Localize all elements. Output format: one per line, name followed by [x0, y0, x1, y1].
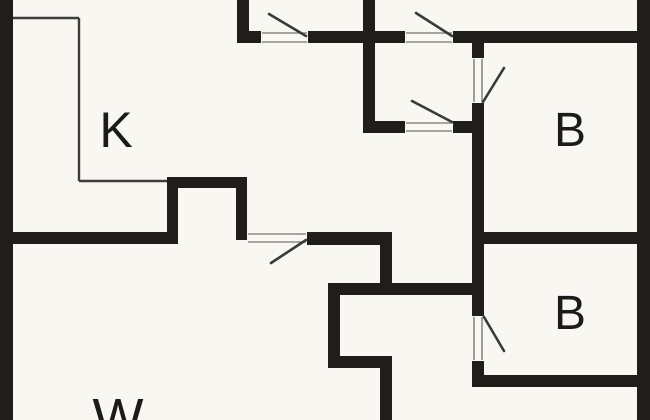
hall-wall-top	[307, 232, 392, 245]
hallroom-wall-bottom-left	[363, 121, 405, 133]
top-wall-middle	[308, 31, 405, 43]
hallroom-wall-left	[363, 0, 375, 133]
corridor-wall-horizontal	[328, 283, 473, 295]
exterior-wall-right	[637, 0, 650, 420]
alcove-wall-top	[167, 177, 247, 188]
alcove-wall-left	[167, 177, 178, 244]
room-label-living-room: W	[93, 388, 144, 420]
bedroom-wall-top-segment	[472, 31, 484, 58]
floor-plan: KBBW	[0, 0, 650, 420]
corridor-wall-lower	[380, 356, 392, 420]
room-label-bedroom-top: B	[554, 104, 586, 157]
plan-background	[0, 0, 650, 420]
entry-wall-stub	[237, 31, 261, 43]
room-label-kitchen: K	[99, 102, 132, 158]
floor-plan-canvas: KBBW	[0, 0, 650, 420]
room-label-bedroom-bottom: B	[554, 287, 586, 340]
kitchen-bottom-wall	[0, 232, 178, 244]
bedroom-divider-wall	[472, 232, 650, 244]
exterior-wall-left	[0, 0, 13, 420]
corridor-wall-left	[328, 283, 340, 368]
alcove-wall-right	[236, 177, 247, 240]
bedroom-wall-mid-segment	[472, 103, 484, 316]
bedroom-bottom-wall	[472, 375, 650, 387]
